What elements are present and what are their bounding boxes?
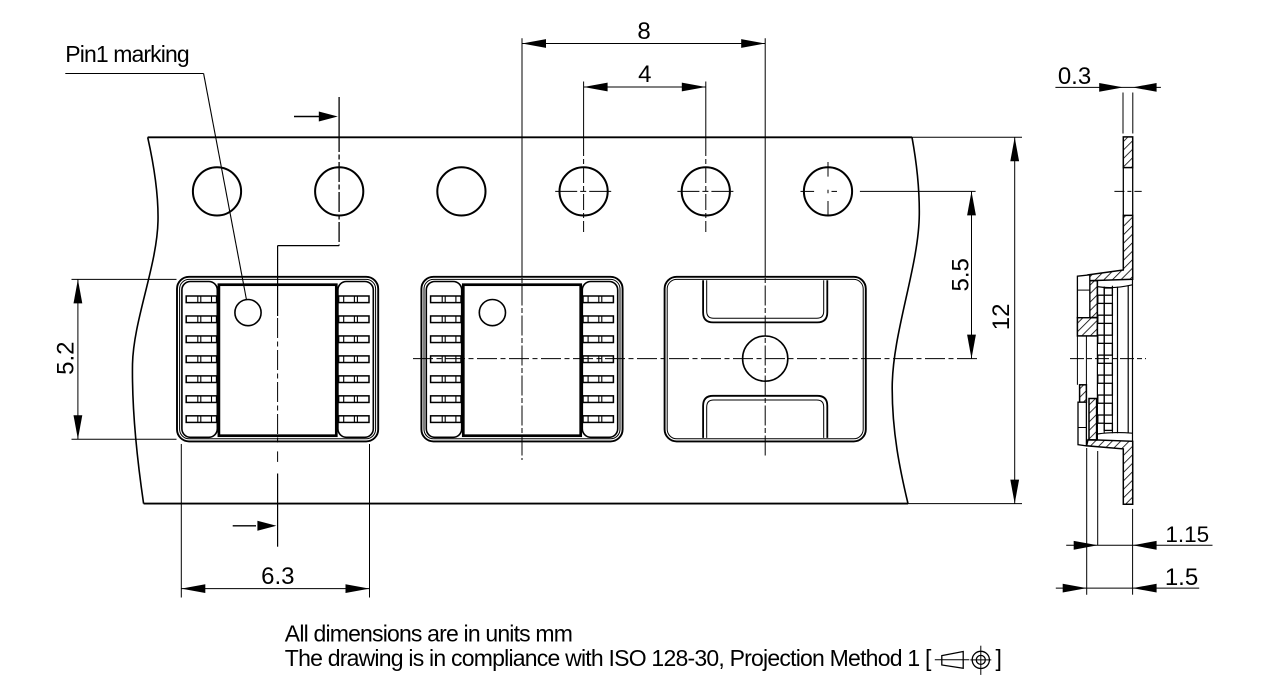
svg-text:]: ] (996, 645, 1002, 671)
svg-text:4: 4 (638, 61, 651, 88)
svg-text:5.5: 5.5 (948, 258, 975, 291)
svg-text:0.3: 0.3 (1058, 63, 1091, 90)
svg-text:Pin1 marking: Pin1 marking (65, 41, 189, 67)
svg-text:6.3: 6.3 (261, 563, 294, 590)
svg-text:8: 8 (637, 18, 650, 45)
svg-text:All dimensions are in units mm: All dimensions are in units mm (285, 621, 572, 647)
svg-text:The drawing is in compliance w: The drawing is in compliance with ISO 12… (285, 645, 932, 671)
svg-text:12: 12 (988, 304, 1015, 331)
svg-text:1.15: 1.15 (1165, 522, 1209, 547)
svg-text:5.2: 5.2 (52, 342, 79, 375)
svg-text:1.5: 1.5 (1165, 564, 1198, 591)
